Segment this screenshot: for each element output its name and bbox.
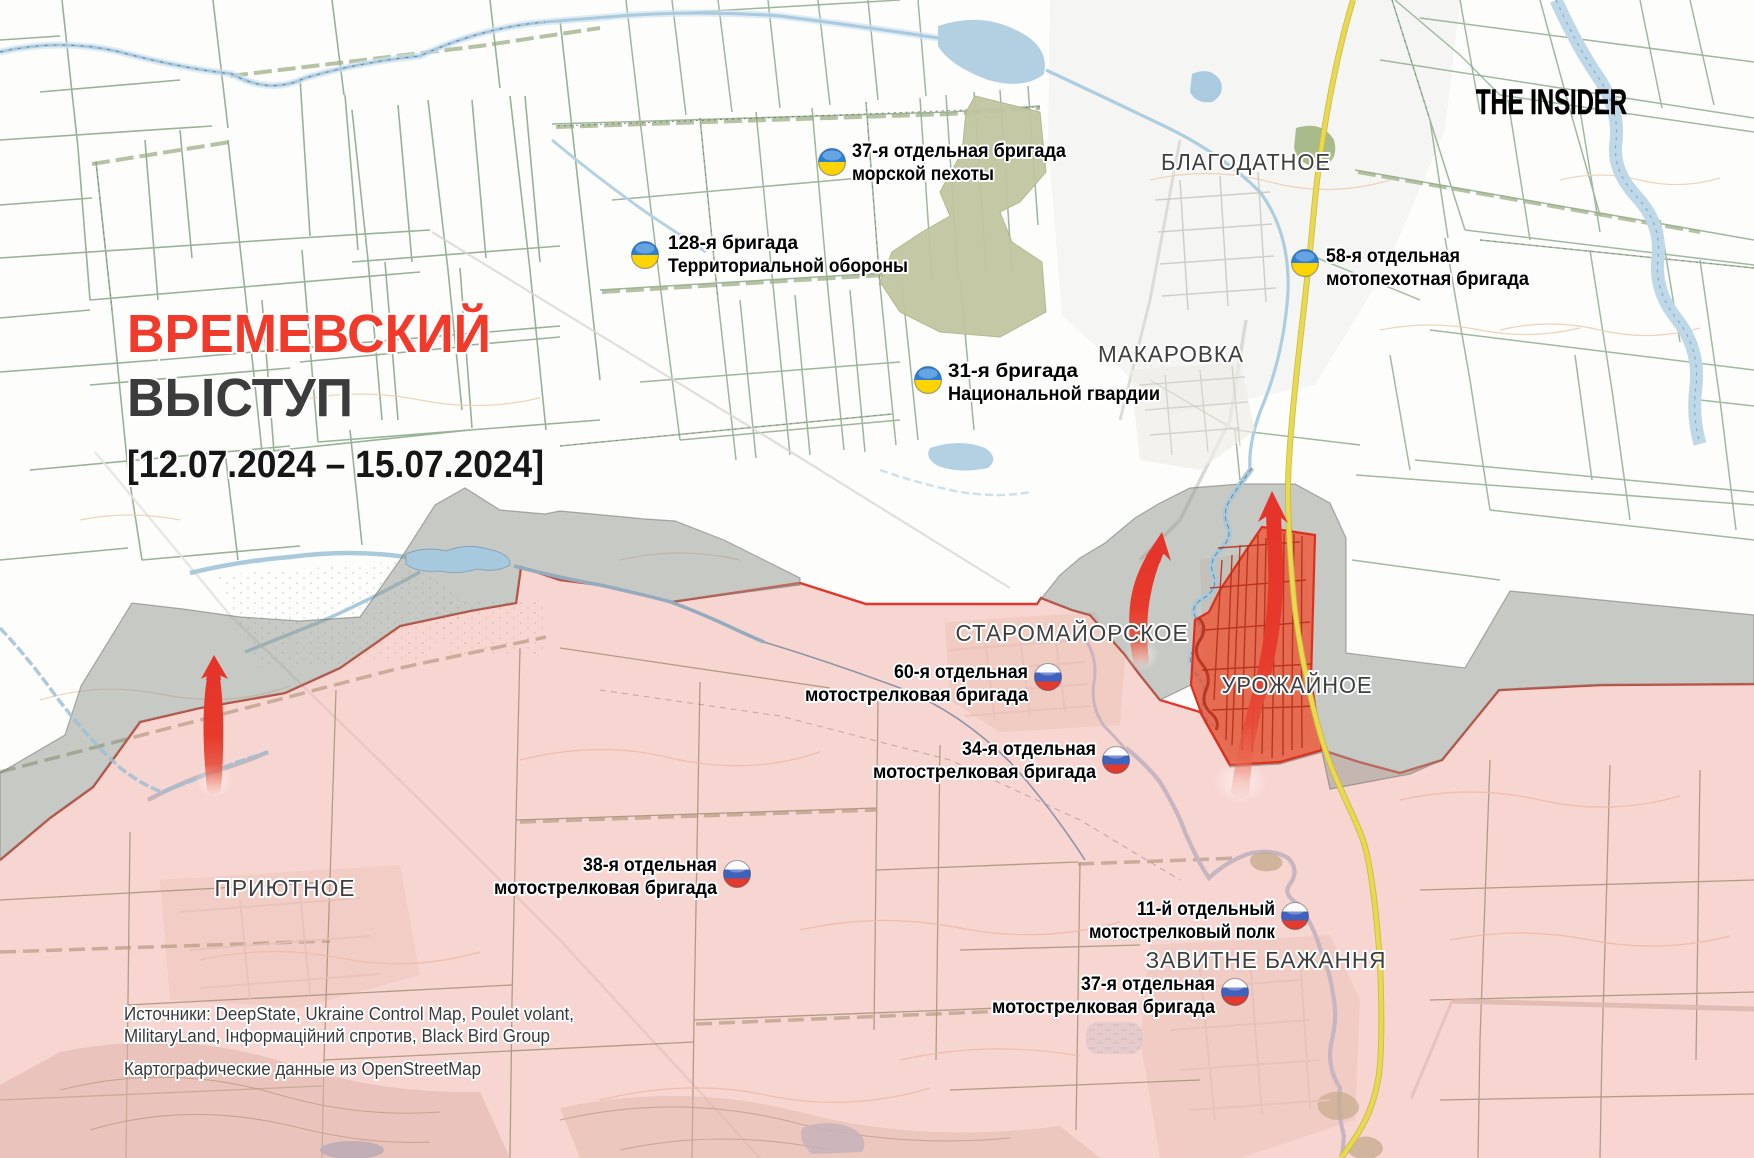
svg-text:СТАРОМАЙОРСКОЕ: СТАРОМАЙОРСКОЕ	[956, 619, 1189, 646]
svg-text:ВРЕМЕВСКИЙ: ВРЕМЕВСКИЙ	[127, 303, 491, 364]
svg-text:[12.07.2024 – 15.07.2024]: [12.07.2024 – 15.07.2024]	[127, 444, 544, 486]
svg-text:37-я отдельная: 37-я отдельная	[1081, 973, 1215, 995]
svg-text:Источники: DeepState, Ukraine: Источники: DeepState, Ukraine Control Ma…	[124, 1003, 574, 1024]
svg-text:ЗАВИТНЕ БАЖАННЯ: ЗАВИТНЕ БАЖАННЯ	[1146, 947, 1387, 973]
svg-text:Территориальной обороны: Территориальной обороны	[668, 255, 908, 277]
svg-text:БЛАГОДАТНОЕ: БЛАГОДАТНОЕ	[1161, 149, 1331, 175]
svg-text:мотострелковая бригада: мотострелковая бригада	[805, 684, 1028, 706]
svg-text:УРОЖАЙНОЕ: УРОЖАЙНОЕ	[1222, 671, 1373, 698]
svg-text:ПРИЮТНОЕ: ПРИЮТНОЕ	[215, 875, 356, 901]
svg-text:Картографические данные из Ope: Картографические данные из OpenStreetMap	[124, 1058, 481, 1079]
svg-text:34-я отдельная: 34-я отдельная	[962, 738, 1096, 760]
svg-text:мотопехотная бригада: мотопехотная бригада	[1326, 268, 1529, 290]
svg-text:MilitaryLand, Інформаційний сп: MilitaryLand, Інформаційний спротив, Bla…	[124, 1025, 550, 1046]
svg-text:ВЫСТУП: ВЫСТУП	[127, 368, 353, 428]
svg-text:мотострелковая бригада: мотострелковая бригада	[494, 877, 717, 899]
svg-text:60-я отдельная: 60-я отдельная	[894, 661, 1028, 683]
svg-text:37-я отдельная бригада: 37-я отдельная бригада	[852, 140, 1066, 162]
svg-text:мотострелковая бригада: мотострелковая бригада	[992, 996, 1215, 1018]
svg-text:38-я отдельная: 38-я отдельная	[583, 854, 717, 876]
svg-text:128-я бригада: 128-я бригада	[668, 232, 798, 254]
svg-text:мотострелковая бригада: мотострелковая бригада	[873, 761, 1096, 783]
svg-text:31-я бригада: 31-я бригада	[948, 360, 1078, 382]
svg-text:Национальной гвардии: Национальной гвардии	[948, 383, 1160, 405]
svg-text:МАКАРОВКА: МАКАРОВКА	[1098, 341, 1244, 367]
svg-text:мотострелковый полк: мотострелковый полк	[1089, 921, 1275, 943]
svg-text:11-й отдельный: 11-й отдельный	[1137, 898, 1275, 920]
svg-text:THE INSIDER: THE INSIDER	[1476, 83, 1627, 122]
svg-text:58-я отдельная: 58-я отдельная	[1326, 245, 1460, 267]
svg-text:морской пехоты: морской пехоты	[852, 163, 994, 185]
